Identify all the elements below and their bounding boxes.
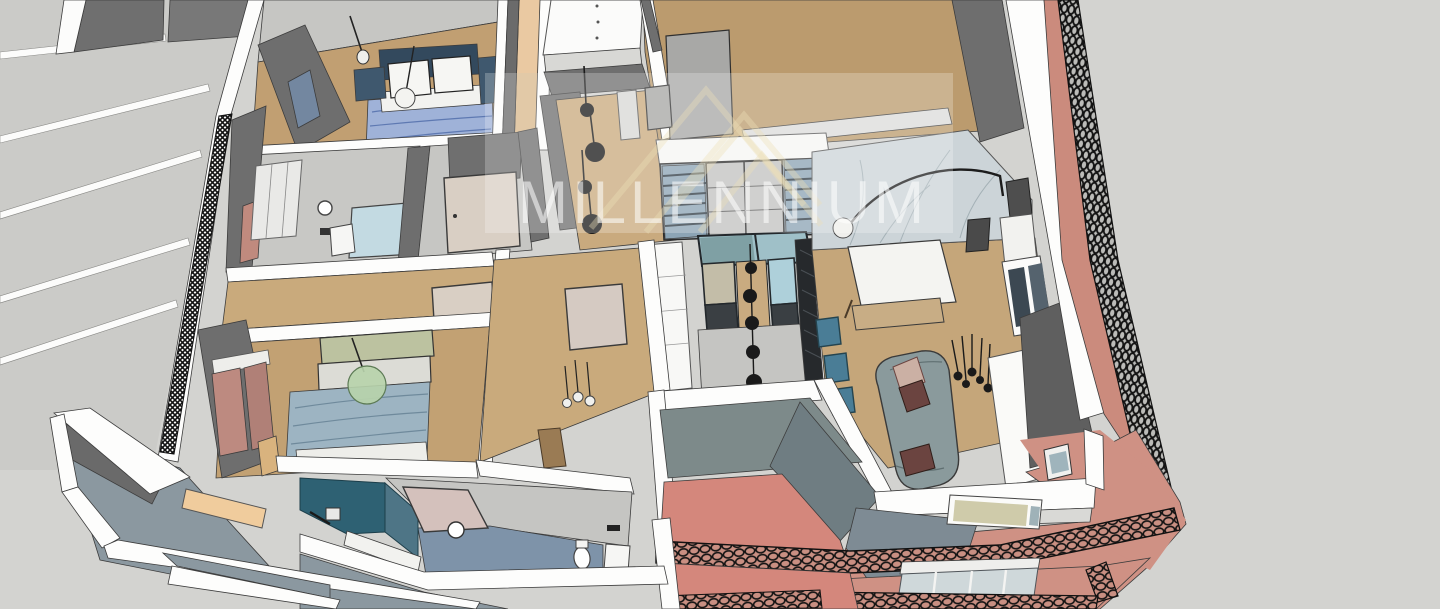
svg-text:MILLENNIUM: MILLENNIUM: [518, 169, 928, 236]
